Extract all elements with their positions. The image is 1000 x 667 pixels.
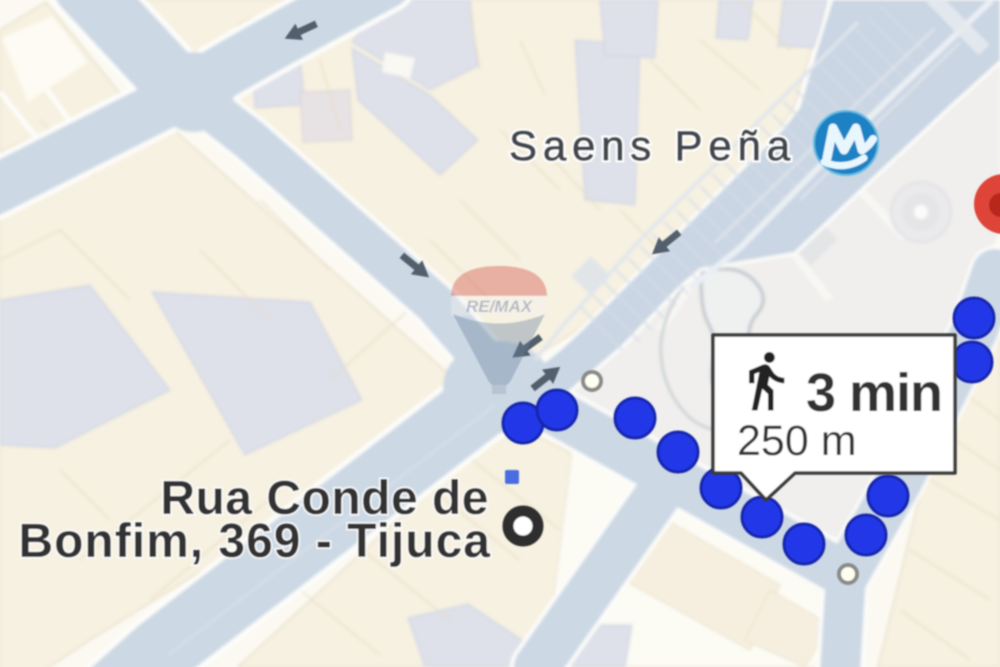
svg-text:250 m: 250 m [737,417,857,465]
svg-text:RE/MAX: RE/MAX [466,297,534,316]
svg-text:Bonfim, 369 - Tijuca: Bonfim, 369 - Tijuca [18,515,491,568]
svg-text:Saens Peña: Saens Peña [509,122,796,169]
svg-text:3 min: 3 min [806,363,942,423]
